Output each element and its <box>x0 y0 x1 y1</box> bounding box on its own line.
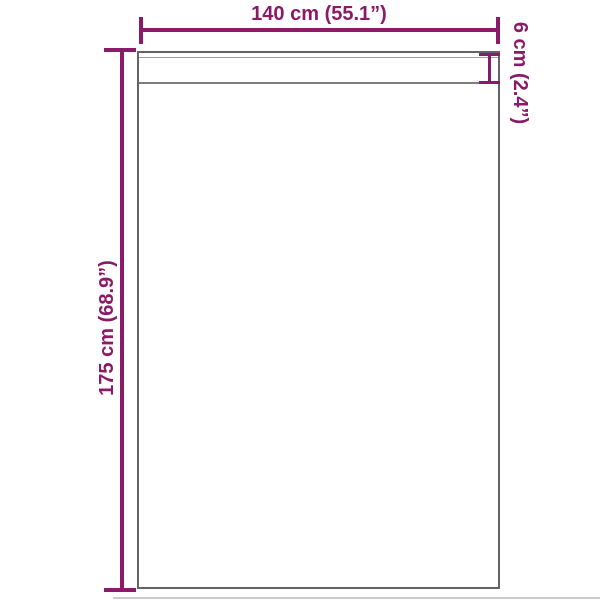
height-dimension-label: 175 cm (68.9”) <box>97 260 117 396</box>
width-dimension-tick-left <box>139 17 143 44</box>
hem-upper-line <box>139 57 498 58</box>
height-dimension-tick-top <box>104 48 136 52</box>
hem-dimension-tick-bottom <box>479 81 500 84</box>
width-dimension-line <box>139 28 500 32</box>
product-outline-rectangle <box>137 51 500 589</box>
hem-dimension-line <box>488 53 491 84</box>
dimension-diagram-canvas: 140 cm (55.1”) 175 cm (68.9”) 6 cm (2.4”… <box>0 0 600 600</box>
hem-dimension-tick-top <box>479 53 500 56</box>
width-dimension-tick-right <box>496 17 500 44</box>
floor-shadow-line <box>113 597 600 599</box>
hem-lower-line <box>139 82 498 84</box>
hem-dimension-label: 6 cm (2.4”) <box>510 22 530 124</box>
width-dimension-label: 140 cm (55.1”) <box>251 4 387 24</box>
height-dimension-line <box>120 50 124 592</box>
height-dimension-tick-bottom <box>104 588 136 592</box>
